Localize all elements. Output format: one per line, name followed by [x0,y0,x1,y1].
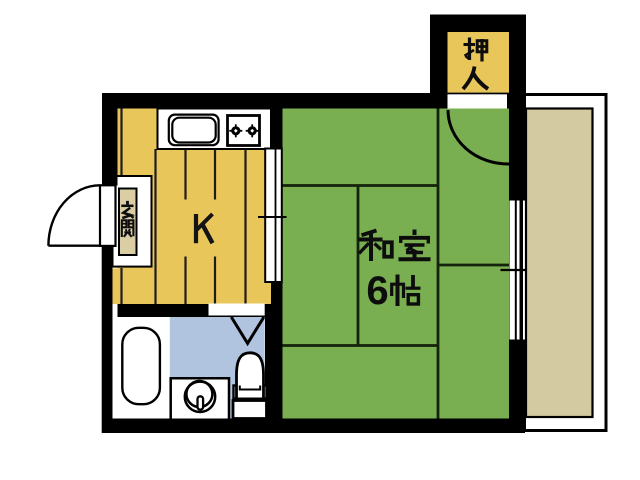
svg-text:6: 6 [366,269,388,313]
